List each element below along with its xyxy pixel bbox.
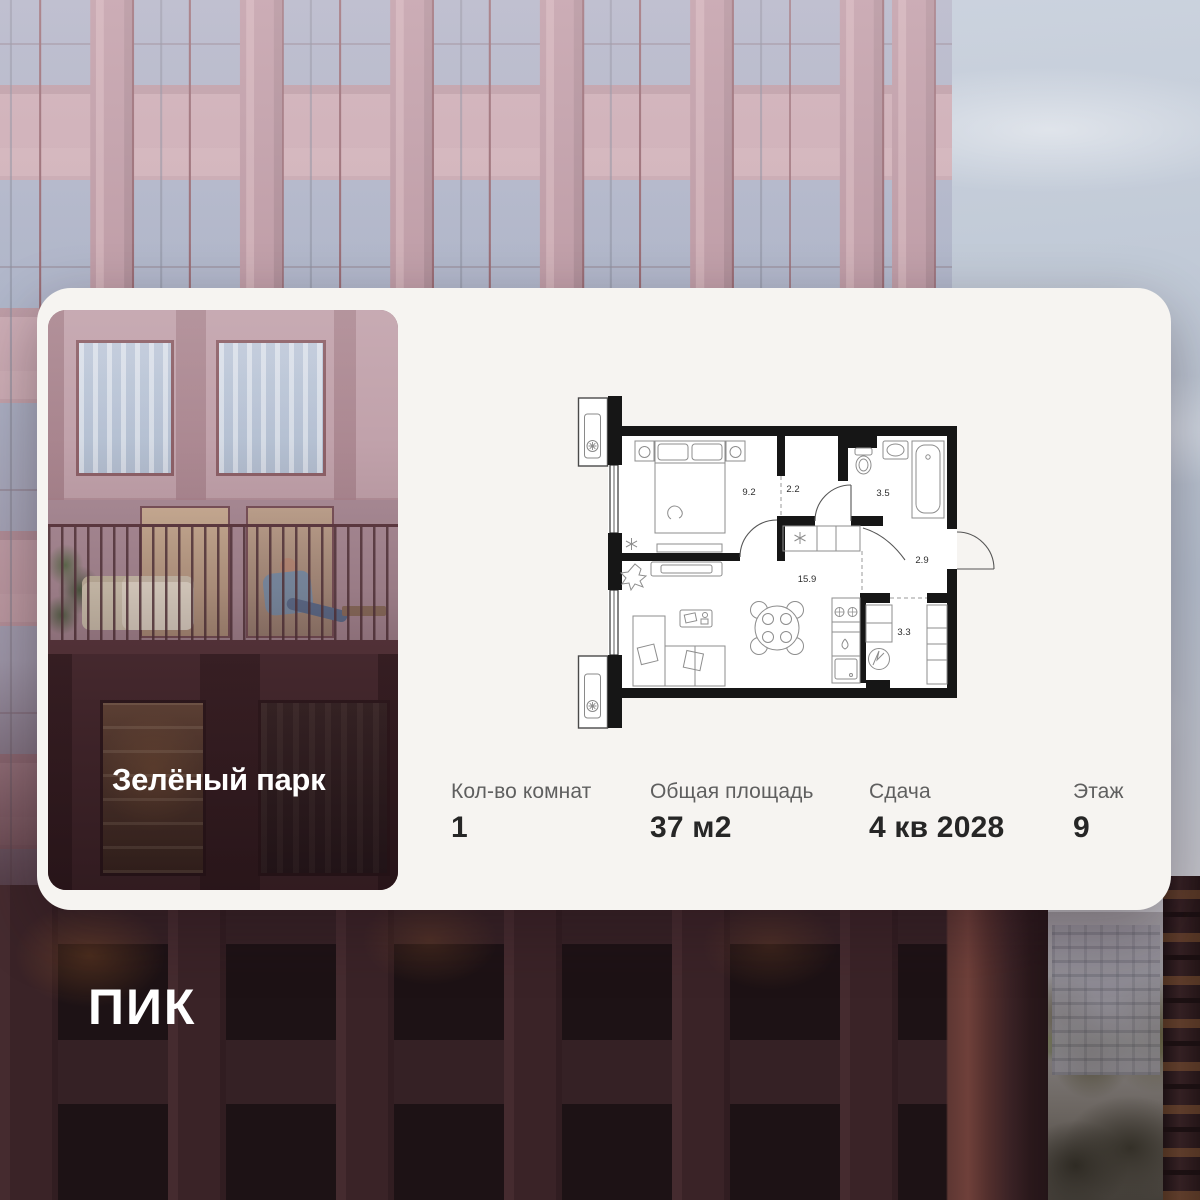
neighbor-building (1163, 876, 1200, 1200)
room-area-label: 3.5 (876, 488, 889, 499)
building-facade-dark-lower (0, 885, 1048, 1200)
listing-card[interactable]: Зелёный парк (37, 288, 1171, 910)
room-area-label: 3.3 (897, 627, 910, 638)
photo-shade-overlay (48, 310, 398, 890)
spec-floor-number: Этаж 9 (1073, 780, 1124, 845)
spec-rooms-count: Кол-во комнат 1 (451, 780, 591, 845)
spec-label: Кол-во комнат (451, 780, 591, 804)
room-area-label: 2.9 (915, 555, 928, 566)
pik-logo: ПИК (88, 982, 196, 1032)
spec-value: 9 (1073, 811, 1124, 845)
room-area-label: 15.9 (798, 574, 817, 585)
balcony-bottom (579, 656, 608, 728)
ac-fan-icon (589, 442, 597, 450)
dining-set (751, 602, 804, 655)
ad-banner: ПИК (0, 0, 1200, 1200)
spec-label: Общая площадь (650, 780, 814, 804)
spec-value: 4 кв 2028 (869, 811, 1004, 845)
ac-fan-icon (589, 702, 597, 710)
spec-label: Сдача (869, 780, 1004, 804)
room-area-label: 9.2 (742, 487, 755, 498)
balcony-top (579, 398, 608, 466)
spec-delivery-date: Сдача 4 кв 2028 (869, 780, 1004, 845)
floor-plan: 9.2 2.2 3.5 2.9 15.9 3.3 (575, 388, 995, 740)
spec-value: 1 (451, 811, 591, 845)
project-photo: Зелёный парк (48, 310, 398, 890)
spec-value: 37 м2 (650, 811, 814, 845)
dining-table (755, 606, 799, 650)
spec-label: Этаж (1073, 780, 1124, 804)
spec-total-area: Общая площадь 37 м2 (650, 780, 814, 845)
room-area-label: 2.2 (786, 484, 799, 495)
distant-building (1052, 925, 1160, 1075)
project-title: Зелёный парк (112, 762, 325, 798)
